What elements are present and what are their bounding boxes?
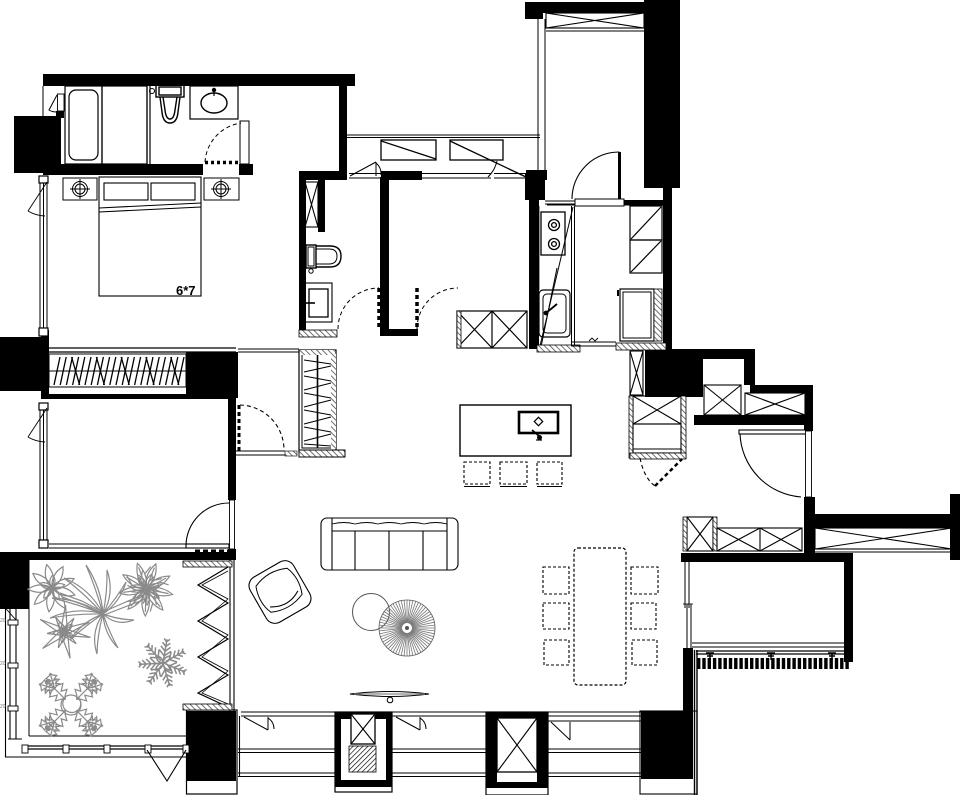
svg-text:20: 20 — [0, 704, 6, 710]
svg-text:20: 20 — [0, 618, 6, 624]
svg-text:20: 20 — [0, 661, 6, 667]
svg-text:6*7: 6*7 — [176, 283, 196, 298]
